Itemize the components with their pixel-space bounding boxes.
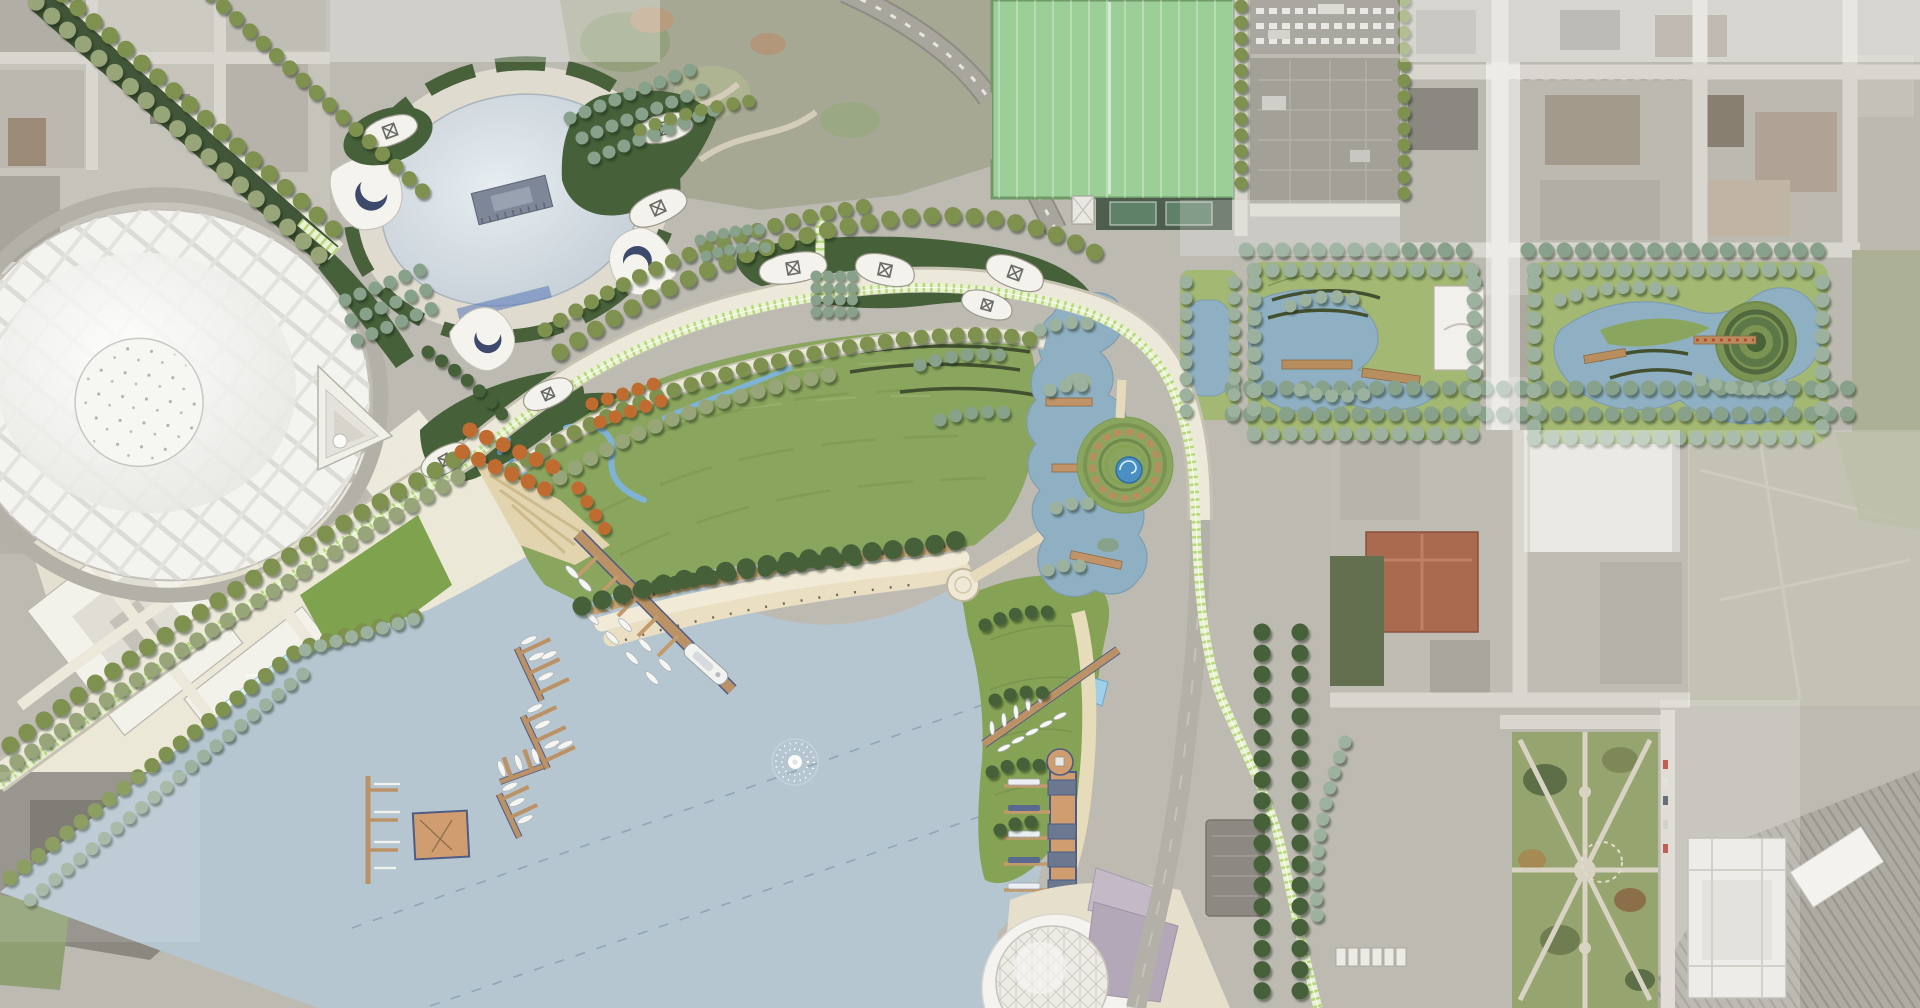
- substation-aerial: [1250, 58, 1400, 206]
- site-plan-map: Aerial master-plan rendering of a waterf…: [0, 0, 1920, 1008]
- thornton-park: [1500, 710, 1670, 1008]
- parking-lot-aerial: [1250, 0, 1400, 54]
- pond-bridge-a: [1282, 360, 1352, 369]
- courtyard-garden: [1330, 556, 1384, 686]
- turf-fields: [958, 0, 1234, 230]
- lagoon-bridge-a: [1046, 398, 1092, 406]
- marina-wharf: [413, 811, 469, 860]
- screenshot-root: Aerial master-plan rendering of a waterf…: [0, 0, 1920, 1008]
- spiral-north-path: [1120, 380, 1122, 418]
